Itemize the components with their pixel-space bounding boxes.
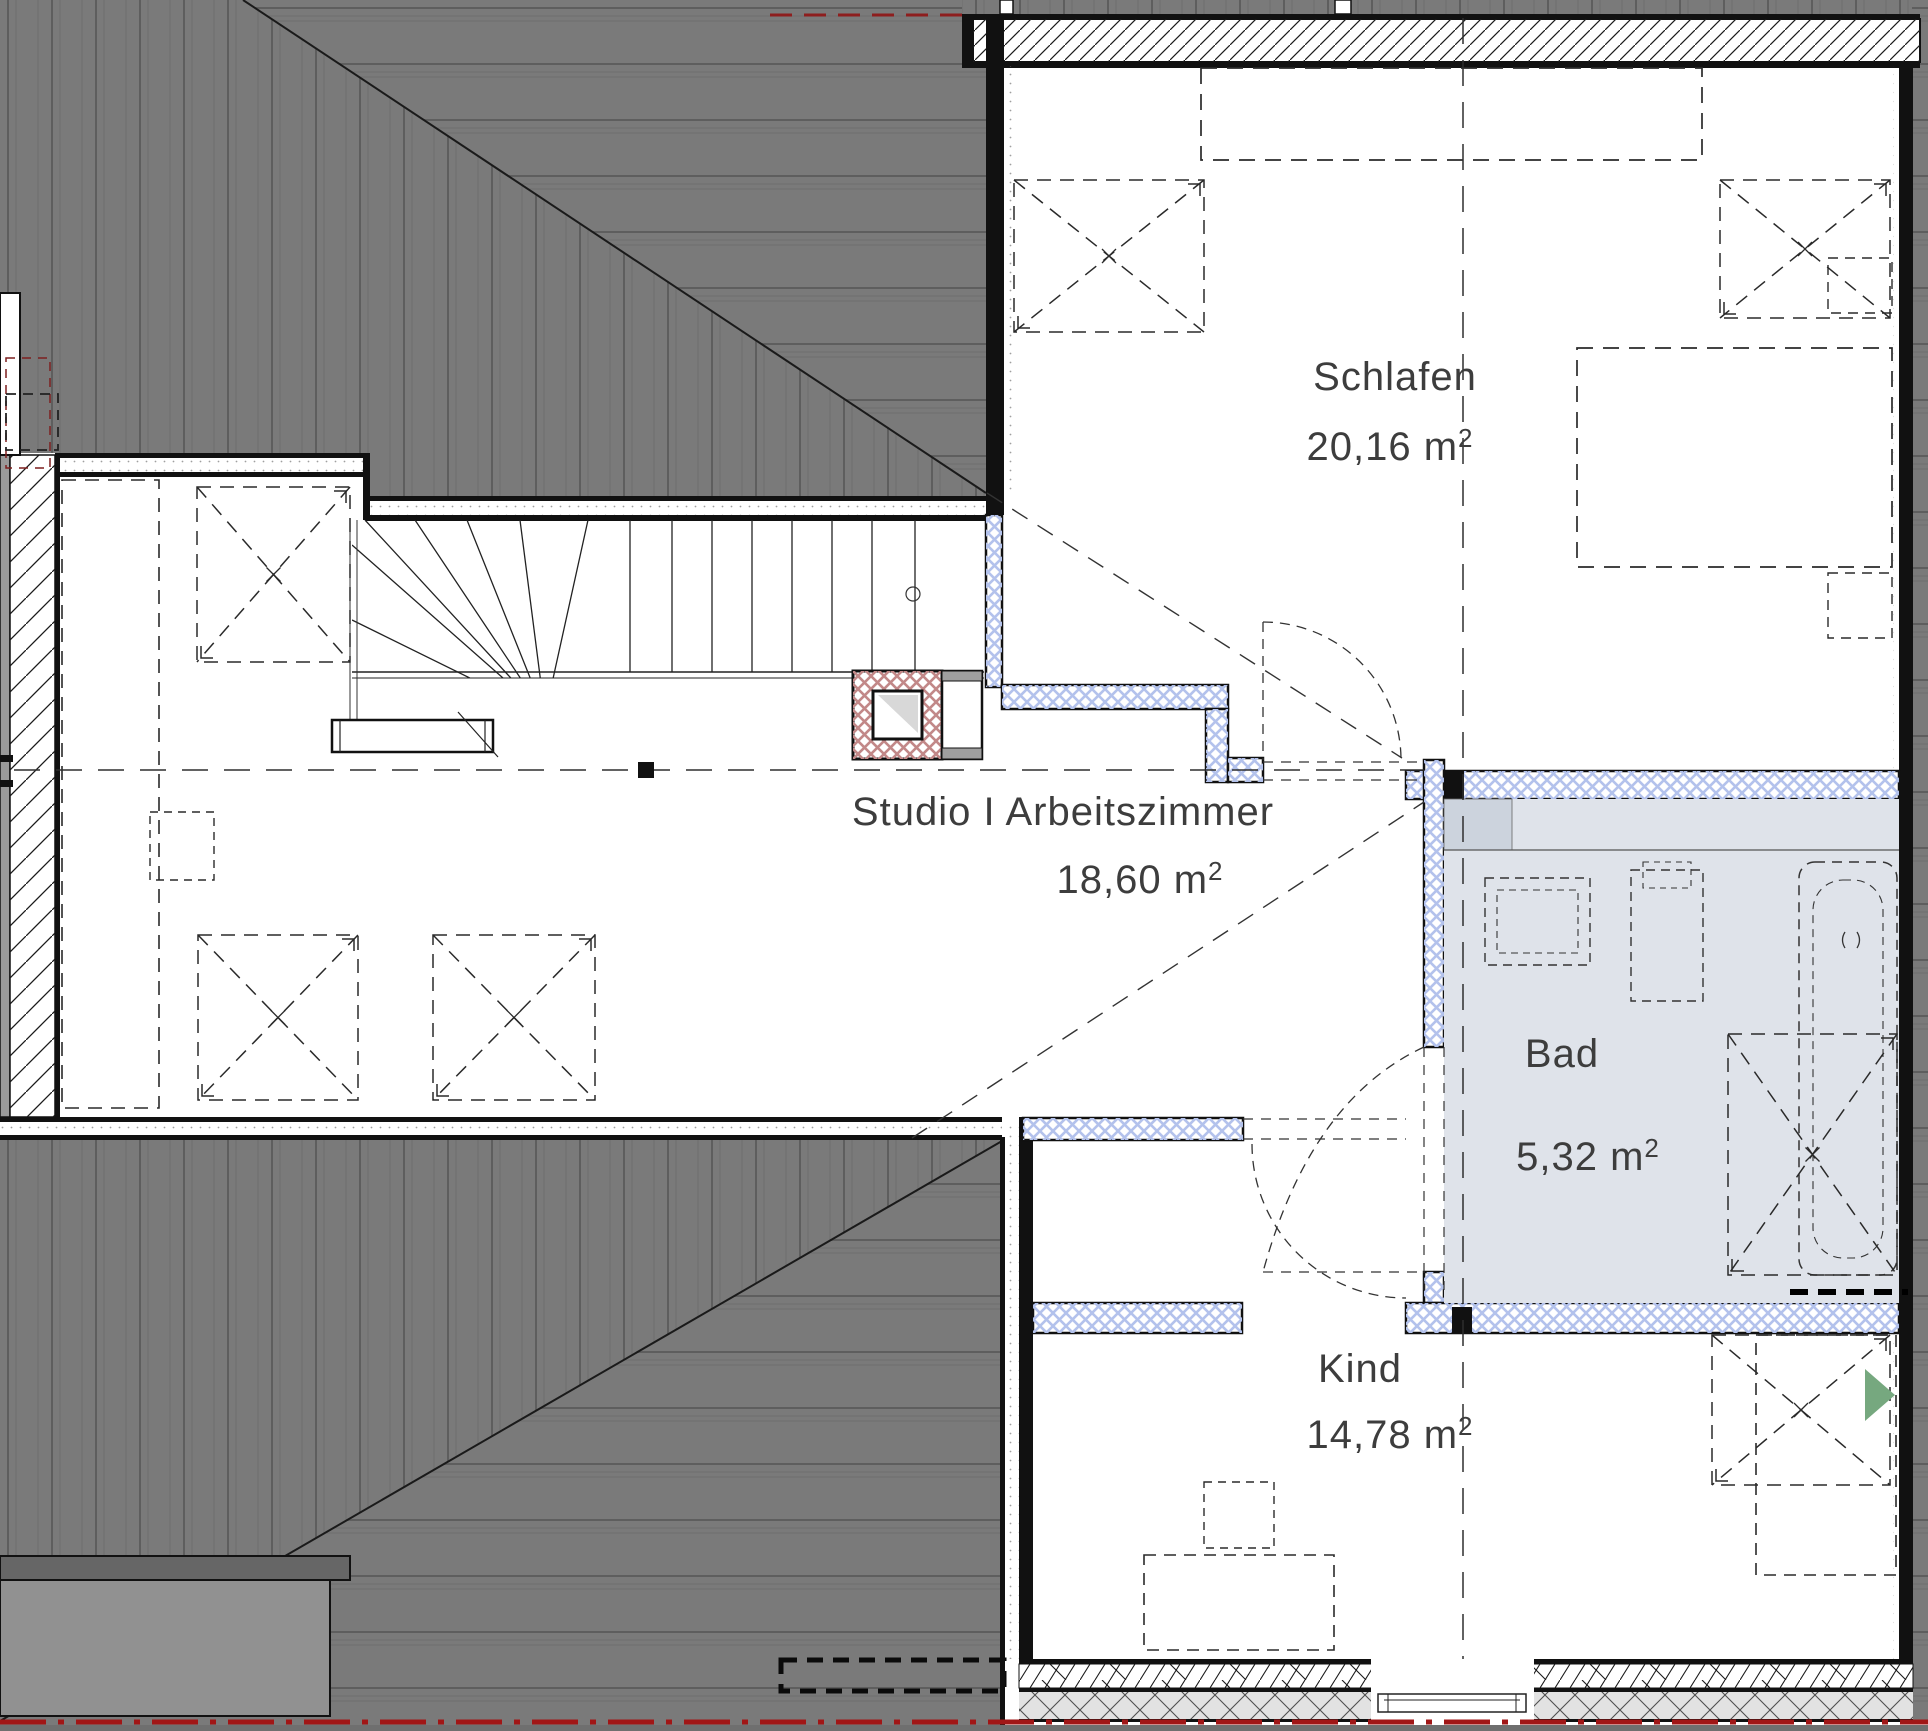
studio-bottom-wall: [0, 1117, 1002, 1140]
door-post-mark-top: [1444, 771, 1464, 799]
area-schlafen: 20,16 m2: [1306, 423, 1473, 469]
bath-duct: [1444, 799, 1512, 850]
label-studio: Studio I Arbeitszimmer: [852, 790, 1274, 834]
kind-window: [1371, 1659, 1534, 1722]
bath-floor: [1444, 799, 1899, 1303]
label-bad: Bad: [1525, 1032, 1599, 1076]
section-marker: [638, 762, 654, 778]
bedroom-west-wall: [986, 14, 1004, 515]
area-kind: 14,78 m2: [1306, 1411, 1473, 1457]
stairwell-wall: [986, 515, 1002, 687]
room-bad: [1444, 799, 1908, 1303]
floor-plan-drawing: Schlafen 20,16 m2 Studio I Arbeitszimmer…: [0, 0, 1928, 1731]
left-wall-upper-stub: [0, 293, 20, 455]
floor-plan-canvas: Schlafen 20,16 m2 Studio I Arbeitszimmer…: [0, 0, 1928, 1731]
upper-wall-cut-1: [1000, 0, 1013, 14]
door-post-mark-bottom: [1452, 1307, 1472, 1333]
bath-north-wall: [1406, 771, 1899, 799]
roof-sliver-top-hatch: [962, 0, 1928, 14]
duct-shaft: [942, 671, 982, 759]
area-bad: 5,32 m2: [1516, 1133, 1660, 1179]
roof-area-bottom-left: [0, 1137, 1004, 1731]
label-schlafen: Schlafen: [1313, 355, 1477, 399]
area-studio: 18,60 m2: [1056, 856, 1223, 902]
left-wall-window-mark-2: [0, 780, 13, 787]
bath-kind-south-walls: [1033, 1303, 1899, 1333]
bottom-edge-strip: [0, 1725, 1928, 1731]
left-wall-hatch: [10, 455, 55, 1117]
hall-west-wall: [1000, 1117, 1033, 1727]
left-wall-window-mark-1: [0, 755, 13, 762]
bedroom-east-wall: [1899, 66, 1913, 771]
roof-strip-right-edge: [1912, 0, 1928, 1724]
kind-south-wall: [1019, 1659, 1913, 1722]
dormer-block: [0, 1580, 330, 1716]
exterior-wall-hatch-top: [973, 19, 1920, 62]
label-kind: Kind: [1318, 1347, 1402, 1391]
dormer-block-top: [0, 1556, 350, 1580]
upper-wall-cut-2: [1335, 0, 1351, 14]
roof-area-top-left: [0, 0, 986, 496]
chimney: [853, 671, 982, 759]
hall-north-wall: [1023, 1118, 1243, 1140]
